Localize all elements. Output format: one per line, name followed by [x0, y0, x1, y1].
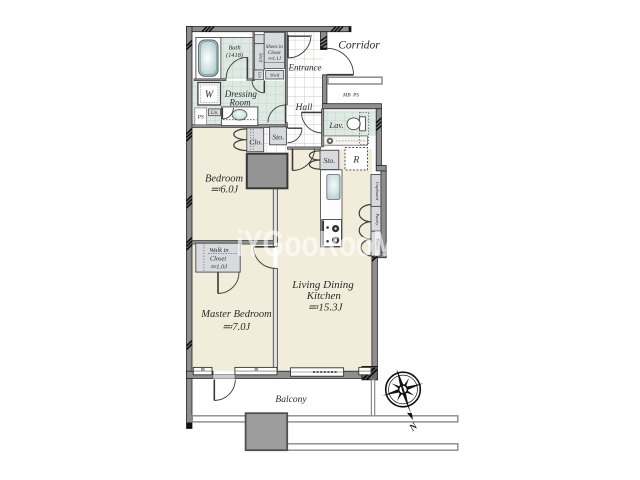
svg-text:Kitchen: Kitchen: [306, 290, 342, 302]
svg-text:Closet: Closet: [210, 255, 227, 262]
svg-text:(1418): (1418): [226, 52, 243, 59]
svg-text:Sto.: Sto.: [272, 133, 284, 142]
svg-text:Lin.: Lin.: [258, 71, 263, 79]
svg-text:Lav.: Lav.: [328, 120, 343, 130]
svg-text:Corridor: Corridor: [338, 40, 380, 52]
svg-text:Cupboard: Cupboard: [375, 182, 380, 201]
svg-text:≕15.3J: ≕15.3J: [307, 301, 343, 313]
svg-text:R: R: [352, 156, 359, 166]
svg-text:Bedroom: Bedroom: [205, 173, 244, 184]
svg-text:≕6.0J: ≕6.0J: [210, 185, 240, 196]
svg-text:Hall: Hall: [295, 103, 313, 113]
svg-text:Room: Room: [229, 98, 251, 108]
svg-text:iYGooRooM: iYGooRooM: [236, 224, 397, 264]
svg-text:MB PS: MB PS: [342, 93, 359, 99]
svg-text:Shelf: Shelf: [270, 73, 280, 78]
svg-text:≕7.0J: ≕7.0J: [222, 322, 252, 333]
svg-text:Shelf: Shelf: [259, 53, 264, 63]
svg-text:Shoes in: Shoes in: [266, 45, 283, 50]
svg-text:Master Bedroom: Master Bedroom: [200, 309, 272, 320]
svg-text:≕1.1J: ≕1.1J: [268, 57, 282, 62]
svg-text:Closet: Closet: [268, 51, 281, 56]
svg-text:Entrance: Entrance: [288, 63, 322, 73]
svg-text:PS: PS: [197, 115, 204, 121]
svg-text:Clo.: Clo.: [249, 137, 262, 146]
svg-text:Balcony: Balcony: [275, 395, 307, 405]
svg-text:Lin.: Lin.: [210, 111, 219, 116]
svg-text:Sto.: Sto.: [323, 156, 335, 165]
svg-text:Walk in: Walk in: [209, 247, 228, 254]
svg-text:Bath: Bath: [228, 45, 240, 52]
svg-text:≕1.0J: ≕1.0J: [210, 264, 228, 271]
